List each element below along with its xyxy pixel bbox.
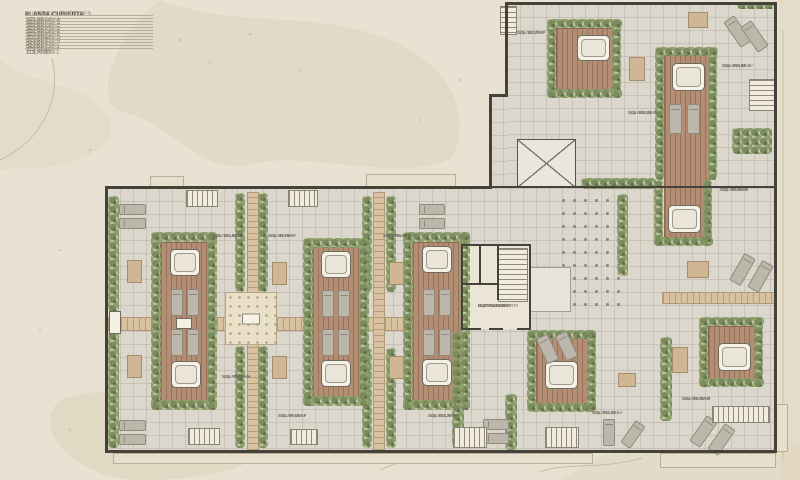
wall-segment xyxy=(529,244,531,330)
stair xyxy=(712,406,770,423)
sunbed xyxy=(322,290,334,317)
jacuzzi xyxy=(718,343,751,371)
parapet-ledge xyxy=(776,404,788,452)
sunbed xyxy=(423,329,435,356)
sunbed xyxy=(687,104,700,134)
wall-segment xyxy=(461,244,531,246)
stair xyxy=(288,190,318,207)
hedge-strip xyxy=(235,346,245,448)
jacuzzi xyxy=(422,359,452,386)
hedge-strip xyxy=(612,19,621,98)
hedge-strip xyxy=(547,89,622,98)
wall-segment xyxy=(489,328,503,330)
sunbed xyxy=(187,329,199,356)
sunbed xyxy=(439,289,451,316)
legend-table: SUPERFICIES ÚTILES PLANTA CUBIERTA SOLAR… xyxy=(25,12,153,51)
hedge-strip xyxy=(732,128,772,154)
jacuzzi xyxy=(672,63,705,91)
planter-bench xyxy=(109,311,121,334)
table-set xyxy=(272,356,287,379)
boardwalk xyxy=(662,292,775,304)
wall-segment xyxy=(505,2,508,97)
plan-label-line: Sup: 113,70 m² xyxy=(428,413,458,418)
sunbed xyxy=(119,204,146,215)
jacuzzi xyxy=(577,35,610,61)
hedge-strip xyxy=(547,19,556,98)
hedge-strip xyxy=(708,47,717,180)
sunbed xyxy=(603,419,615,446)
wall-segment xyxy=(506,2,777,5)
sunbed xyxy=(187,289,199,316)
hedge-strip xyxy=(108,196,119,312)
hedge-strip xyxy=(235,193,245,292)
sunbed xyxy=(119,434,146,445)
plan-label-line: Sup: 92,17 m² xyxy=(517,30,545,35)
wall-segment xyxy=(461,244,463,330)
central-plaza xyxy=(225,292,277,345)
plan-label-line: Sup: 102,85 m² xyxy=(628,110,659,115)
sunbed xyxy=(119,218,146,229)
wall-segment xyxy=(105,450,777,453)
legend-row-value: 113,70 m² xyxy=(26,50,50,57)
table-set xyxy=(687,261,709,278)
wall-segment xyxy=(461,328,481,330)
stair xyxy=(500,6,517,35)
stair xyxy=(545,427,579,448)
sunbed xyxy=(171,289,183,316)
plan-label-line: Sup: 106,40 m² xyxy=(383,233,414,238)
wall-segment xyxy=(497,244,499,300)
roof-plan-drawing: SOLARIUM-FSup: 92,17 m²SOLARIUM-ASup: 10… xyxy=(0,0,800,480)
jacuzzi xyxy=(170,249,200,276)
sunbed xyxy=(338,290,350,317)
hedge-strip xyxy=(547,19,622,28)
table-set xyxy=(672,347,688,373)
hedge-strip xyxy=(359,238,369,406)
floor-plan-sheet: SUPERFICIES ÚTILES PLANTA CUBIERTA SOLAR… xyxy=(0,0,800,480)
stair xyxy=(186,190,218,207)
sunbed xyxy=(322,329,334,356)
table-set xyxy=(127,355,142,378)
wall-segment xyxy=(105,186,108,453)
plan-label-line: Sup: 113,70 m² xyxy=(592,410,622,415)
hedge-strip xyxy=(703,180,712,246)
sunbed xyxy=(419,218,445,229)
wall-segment xyxy=(517,328,531,330)
stair xyxy=(188,428,220,445)
stair xyxy=(453,427,487,448)
hedge-strip xyxy=(108,332,119,448)
hedge-strip xyxy=(699,317,708,387)
plan-label-line: Sup: 69,85 m² xyxy=(222,374,250,379)
plan-label-line: Sup: 84,65 m² xyxy=(278,413,306,418)
wall-segment xyxy=(489,94,492,189)
jacuzzi xyxy=(422,246,452,273)
table-set xyxy=(389,356,404,379)
stair xyxy=(749,79,775,111)
plan-label-line: Sup: 71,95 m² xyxy=(478,303,506,308)
hedge-strip xyxy=(207,232,217,410)
hedge-strip xyxy=(258,193,268,292)
hedge-strip xyxy=(303,238,313,406)
legend-row: SOLARIUM-L113,70 m² xyxy=(25,48,153,51)
hedge-strip xyxy=(617,194,628,276)
sunbed xyxy=(423,289,435,316)
sunbed xyxy=(439,329,451,356)
jacuzzi xyxy=(668,205,701,233)
wall-segment xyxy=(774,2,777,453)
table-set xyxy=(629,57,645,81)
table-set xyxy=(618,373,636,387)
sunbed xyxy=(119,420,146,431)
stair xyxy=(290,429,318,445)
plan-label-line: Sup: 103,90 m² xyxy=(722,63,753,68)
table-set xyxy=(127,260,142,283)
sunbed xyxy=(338,329,350,356)
jacuzzi xyxy=(321,251,351,278)
boardwalk xyxy=(373,192,385,451)
jacuzzi xyxy=(545,361,578,389)
paving-area xyxy=(490,96,508,188)
plan-label-line: Sup: 93,90 m² xyxy=(720,187,748,192)
wall-segment xyxy=(490,94,508,97)
hedge-strip xyxy=(151,232,161,410)
hedge-strip xyxy=(403,232,413,410)
hedge-strip xyxy=(527,330,536,412)
wall-segment xyxy=(479,244,481,284)
plan-label-line: Sup: 112,50 m² xyxy=(213,233,243,238)
table-set xyxy=(688,12,708,28)
table-set xyxy=(389,262,404,285)
hedge-strip xyxy=(587,330,596,412)
parapet-ledge xyxy=(113,453,593,464)
stair xyxy=(498,248,528,302)
jacuzzi xyxy=(171,361,201,388)
hedge-strip xyxy=(660,337,672,421)
hedge-strip xyxy=(258,346,268,448)
hedge-strip xyxy=(754,317,763,387)
skylight xyxy=(517,139,576,188)
wall-segment xyxy=(105,186,492,189)
legend-rows: SOLARIUM-A103,90 m²SOLARIUM-B93,30 m²SOL… xyxy=(25,15,153,51)
plan-label-line: Sup: 84,65 m² xyxy=(268,233,296,238)
skylight xyxy=(527,267,571,312)
sunbed xyxy=(419,204,445,215)
table-set xyxy=(272,262,287,285)
plan-label-line: Sup: 93,30 m² xyxy=(682,396,710,401)
jacuzzi xyxy=(321,360,351,387)
sunbed xyxy=(171,329,183,356)
planter-bench xyxy=(176,318,192,329)
hedge-strip xyxy=(527,403,596,412)
sunbed xyxy=(669,104,682,134)
